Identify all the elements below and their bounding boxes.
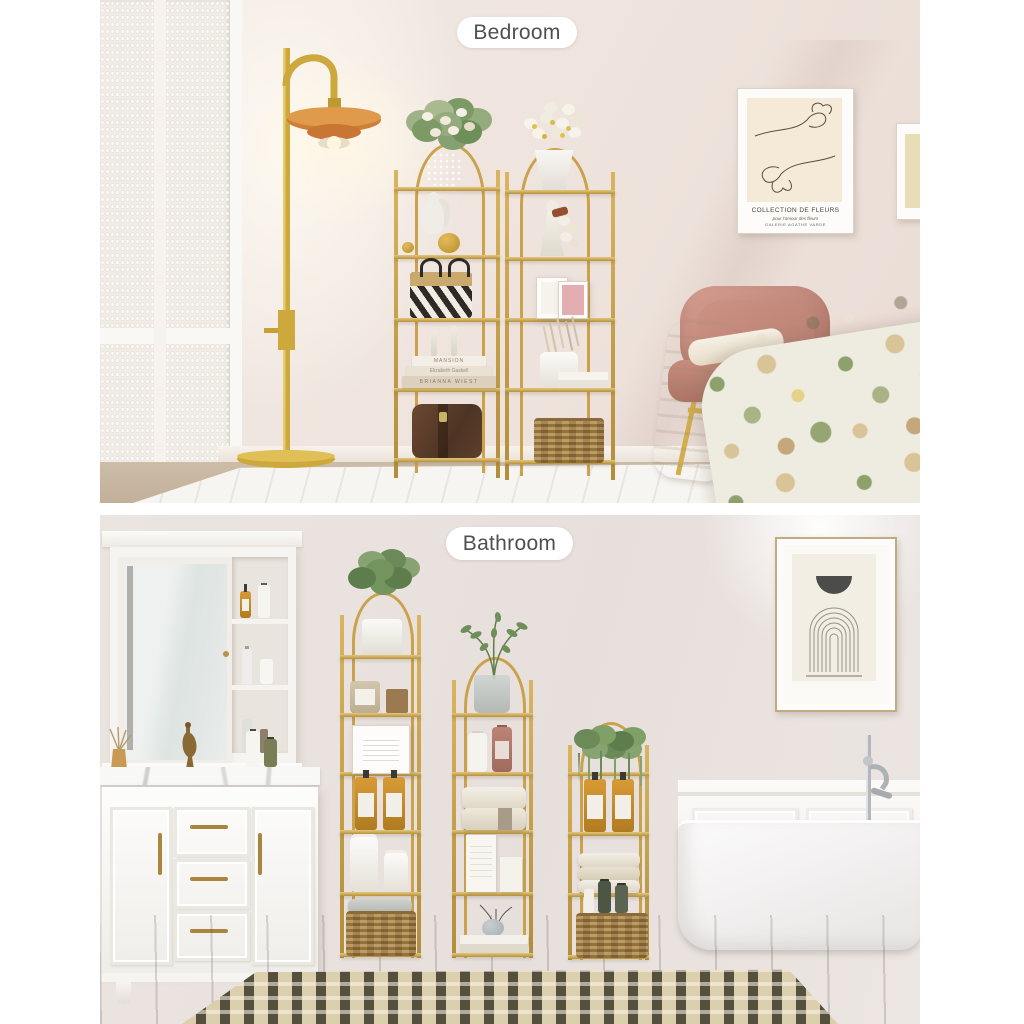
partial-frame-art [905, 134, 920, 208]
handbag-handle [420, 258, 442, 277]
shelf-leg [452, 680, 456, 958]
reed-diffuser [104, 725, 134, 771]
candlestick [431, 330, 437, 356]
vanity-faucet [166, 721, 210, 771]
shelf-bar [505, 388, 615, 392]
folded-towel [578, 853, 640, 867]
shelf-bar [452, 772, 533, 776]
shelf-bar [394, 458, 500, 462]
figurine-flowers [558, 216, 570, 226]
daisy-centers [532, 124, 537, 129]
hatbox-buckle [439, 412, 447, 422]
white-tube [584, 889, 594, 913]
greenery-branches [452, 611, 536, 681]
flower-bouquet [412, 118, 442, 142]
white-plant-pot [540, 352, 578, 388]
wall-art-title: COLLECTION DE FLEURS [738, 207, 853, 214]
partial-wall-frame [896, 123, 920, 220]
angel-figurine [422, 200, 444, 234]
candle-jar [350, 681, 380, 713]
shelf-bar [394, 318, 500, 322]
shelf-leg [568, 745, 572, 960]
book-title: MANSION [412, 358, 486, 364]
white-jar [260, 659, 273, 684]
flower-line-drawing [747, 98, 842, 202]
book-spine-bottom: BRIANNA WIEST [402, 376, 496, 388]
shelf-bar [394, 388, 500, 392]
shelf-bar [340, 892, 421, 896]
wicker-basket [576, 913, 648, 958]
cabinet-shelf-board [232, 619, 288, 624]
glass-vase [426, 152, 464, 188]
towel-band [498, 808, 512, 830]
shelf-bar [568, 772, 649, 776]
print-text-lines [363, 736, 399, 763]
shelf-bar [505, 257, 615, 261]
white-canister-small [384, 853, 408, 892]
amber-pump-bottle [383, 777, 405, 830]
white-pump-bottle [258, 585, 270, 618]
shelf-bar [452, 830, 533, 834]
vanity-drawer [174, 807, 250, 857]
cabinet-open-shelves [232, 557, 288, 753]
book-title: BRIANNA WIEST [402, 379, 496, 385]
cabinet-shelf-board [232, 685, 288, 690]
white-cylinder-pot [362, 619, 402, 655]
folded-towel-banded [462, 808, 526, 830]
artwork-print [792, 554, 876, 681]
shelf-leg [611, 172, 615, 480]
shelf-bar [452, 892, 533, 896]
stacked-books [460, 935, 528, 944]
gold-apple [438, 233, 460, 253]
product-lifestyle-image: MANSION Elizabeth Gaskell BRIANNA WIEST [0, 0, 1024, 1024]
bathroom-artwork-frame [775, 537, 897, 712]
shelf-bar [452, 713, 533, 717]
trailing-plant [574, 729, 600, 749]
book-title: Elizabeth Gaskell [406, 368, 492, 374]
door-handle [258, 833, 262, 875]
marble-countertop [100, 767, 320, 785]
floor-lamp [220, 40, 390, 470]
potted-plant-foliage [348, 567, 376, 589]
amber-pump-bottle [584, 779, 606, 832]
cabinet-knob [223, 651, 229, 657]
window-mullion-vertical [154, 0, 166, 470]
bathroom-scene: Bathroom [100, 515, 920, 1024]
shelf-leg [496, 170, 500, 478]
door-handle [158, 833, 162, 875]
tall-white-box [466, 835, 496, 892]
folded-towel [578, 867, 640, 880]
rose-lotion-bottle [492, 727, 512, 772]
shelf-leg [340, 615, 344, 958]
shelf-bar [568, 832, 649, 836]
shelf-bar [340, 655, 421, 659]
shelf-leg [529, 680, 533, 958]
green-pump-bottle [615, 885, 628, 913]
shelf-print-frame [352, 725, 410, 774]
bedroom-label-pill: Bedroom [457, 17, 577, 48]
bedroom-label: Bedroom [473, 21, 560, 45]
photo-frame-front [558, 281, 588, 319]
folded-towel [462, 787, 526, 809]
amber-pump-bottle [355, 777, 377, 830]
white-lotion-bottle [468, 733, 487, 772]
book-spine-middle: Elizabeth Gaskell [406, 366, 492, 376]
shelf-bar [505, 190, 615, 194]
bathroom-label-pill: Bathroom [446, 527, 573, 560]
white-canister [350, 837, 378, 892]
candlestick [451, 326, 457, 356]
shelf-bar [452, 953, 533, 957]
wicker-storage-basket [346, 911, 416, 956]
white-books [558, 372, 608, 380]
angel-head [428, 192, 439, 203]
wall-art-gallery: GALERIE AGATHE VARDE [738, 222, 853, 227]
drawer-handle [190, 877, 228, 881]
counter-soap-green [264, 739, 277, 767]
flower-blossoms [422, 112, 433, 121]
bedroom-scene: MANSION Elizabeth Gaskell BRIANNA WIEST [100, 0, 920, 503]
pink-print [562, 285, 584, 315]
drawer-handle [190, 825, 228, 829]
cabinet-crown [102, 531, 302, 547]
small-brown-box [386, 689, 408, 713]
candle-label [355, 689, 375, 705]
mirror-edge-shadow [127, 566, 133, 750]
shelf-leg [394, 170, 398, 478]
box-botanical-print [470, 841, 492, 881]
shelf-leg [505, 172, 509, 480]
amber-pump-bottle [612, 779, 634, 832]
shelf-bar [340, 830, 421, 834]
vanity-drawer [174, 859, 250, 909]
amber-bottle [240, 591, 251, 618]
arch-line-art [792, 554, 876, 681]
small-white-card [500, 857, 522, 892]
book-spine-top: MANSION [412, 356, 486, 366]
shelf-bar [394, 255, 500, 259]
lotion-label [495, 741, 509, 759]
white-spray-bottle [242, 649, 252, 684]
wall-art-subtitle: pour l'amour des fleurs [738, 216, 853, 221]
bathroom-label: Bathroom [463, 532, 556, 556]
handbag-handle [448, 258, 470, 277]
glass-vase [474, 675, 510, 713]
wicker-basket [534, 418, 604, 463]
shelf-leg [417, 615, 421, 958]
shelf-bar [340, 713, 421, 717]
wall-art-canvas [747, 98, 842, 202]
wall-art-frame: COLLECTION DE FLEURS pour l'amour des fl… [737, 88, 854, 234]
gold-apple-small [402, 242, 414, 253]
counter-soap-white [246, 731, 260, 767]
trailing-vines [578, 753, 580, 783]
green-pump-bottle [598, 881, 611, 913]
